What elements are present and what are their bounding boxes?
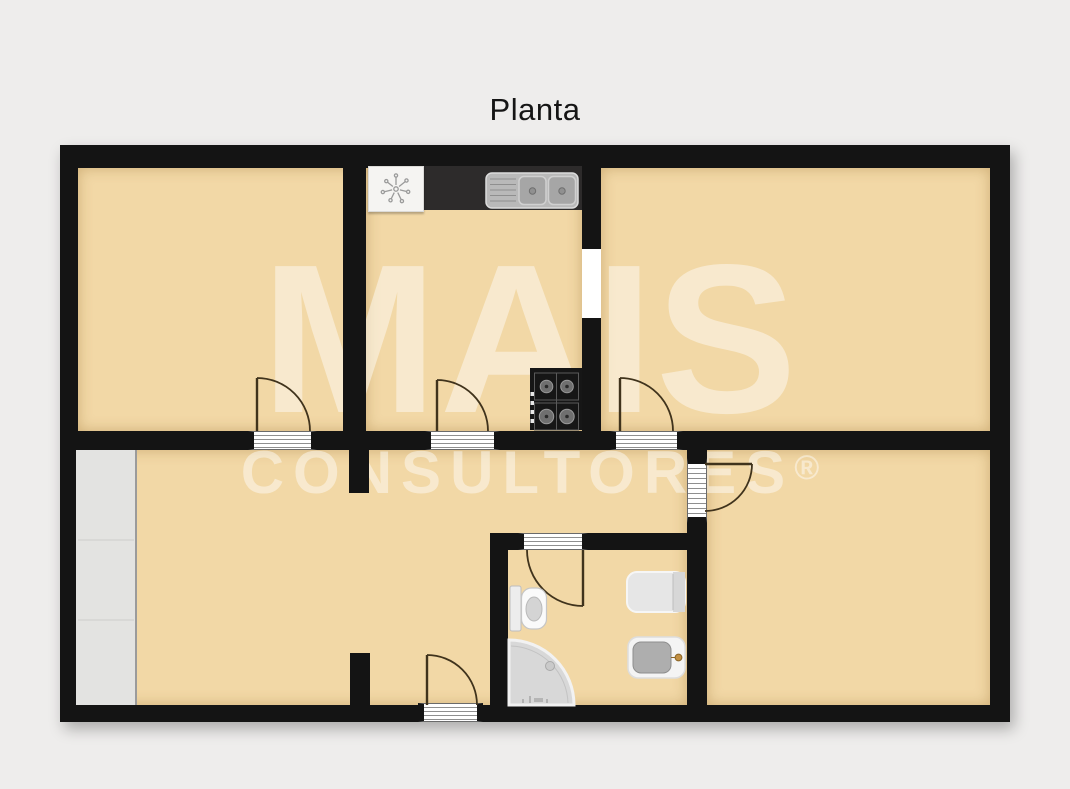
wardrobe — [76, 450, 137, 705]
door-sill-kitchen — [425, 431, 500, 450]
wall-opening-pass-through — [582, 249, 601, 318]
wall-horizontal-divider — [78, 431, 990, 450]
wall-kitchen-right-lower — [582, 318, 601, 431]
floor-plan-page: Planta MAIS CONSULTORES® — [0, 0, 1070, 789]
wall-kitchen-right-upper — [582, 168, 601, 249]
door-sill-bathroom — [518, 533, 588, 550]
door-sill-bedroom — [687, 458, 707, 523]
room-bedroom — [707, 450, 990, 705]
room-living-hall — [78, 450, 687, 705]
wall-stub-lower — [350, 653, 370, 705]
page-title: Planta — [0, 92, 1070, 128]
door-sill-top-right-room — [610, 431, 683, 450]
wall-topleft-kitchen — [343, 168, 366, 431]
door-sill-entrance — [418, 703, 483, 722]
door-sill-top-left-room — [248, 431, 317, 450]
floor-plan: MAIS CONSULTORES® — [60, 145, 1010, 722]
kitchen-counter — [424, 166, 582, 210]
room-top-right — [601, 168, 990, 431]
wall-stub-upper — [349, 450, 369, 493]
wall-bathroom-left — [490, 533, 508, 705]
kitchen-appliance — [368, 166, 424, 212]
